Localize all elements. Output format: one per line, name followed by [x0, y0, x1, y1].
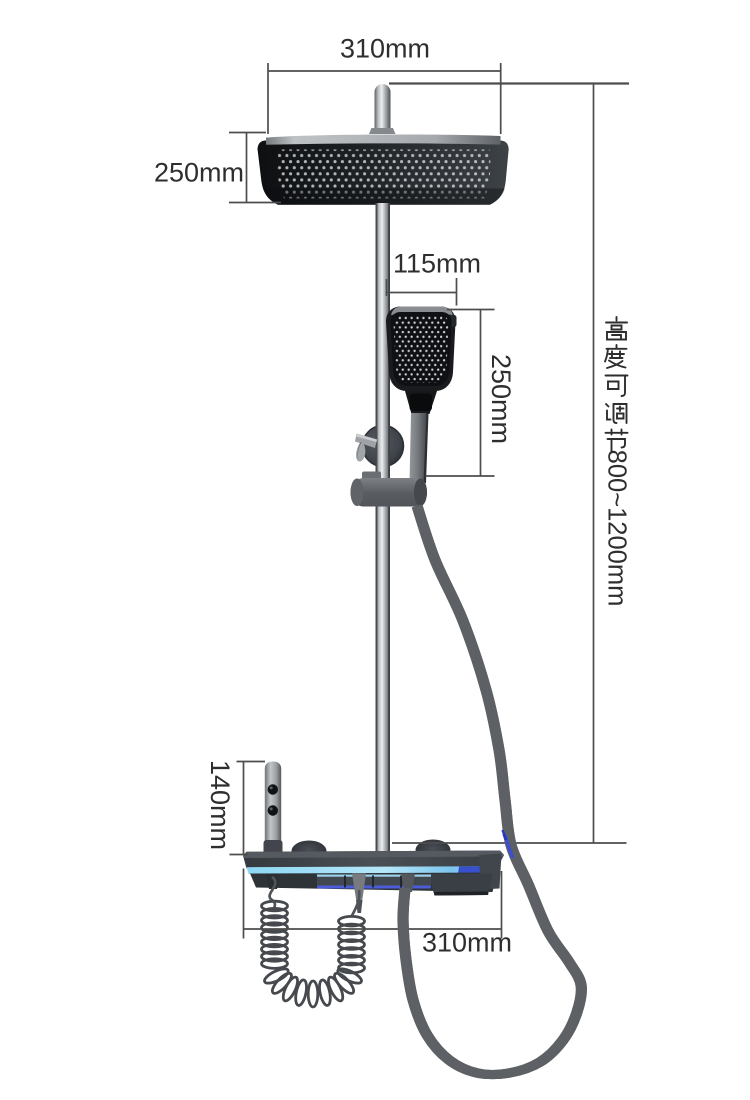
svg-text:250mm: 250mm — [486, 354, 516, 444]
svg-text:115mm: 115mm — [393, 249, 481, 279]
svg-text:800~1200mm: 800~1200mm — [603, 450, 631, 607]
svg-text:250mm: 250mm — [154, 158, 244, 188]
svg-text:310mm: 310mm — [340, 34, 430, 64]
svg-text:140mm: 140mm — [205, 760, 235, 850]
svg-text:310mm: 310mm — [422, 928, 512, 958]
